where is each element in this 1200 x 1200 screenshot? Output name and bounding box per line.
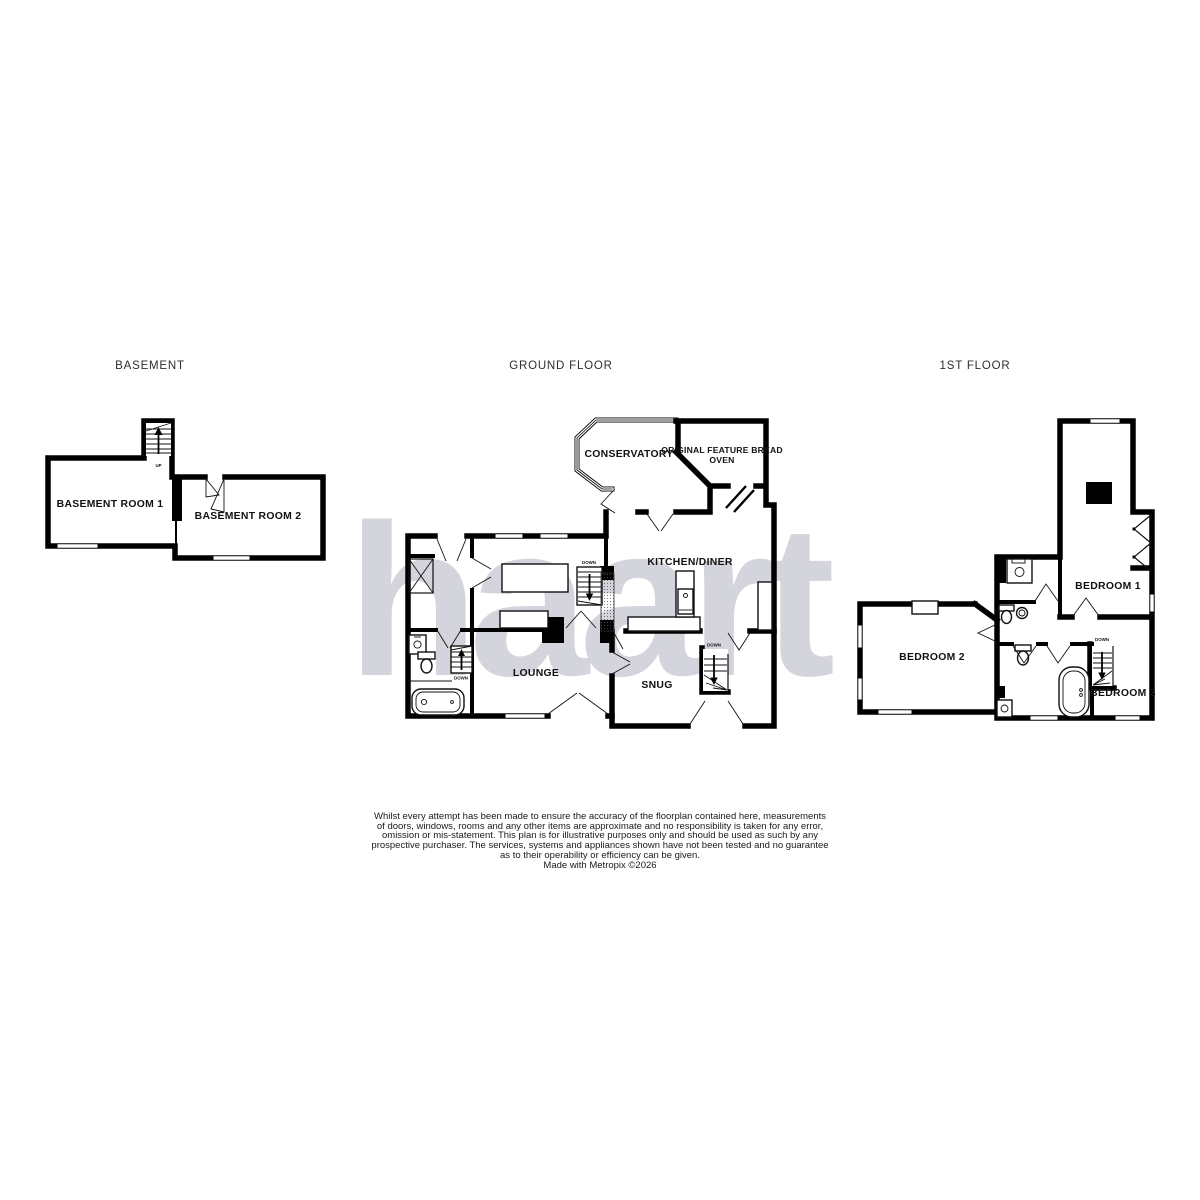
hall-closet bbox=[409, 559, 433, 593]
ground-floor-plan: DOWN bbox=[408, 420, 783, 726]
bedroom2-chimney bbox=[912, 601, 938, 614]
snug-label: SNUG bbox=[641, 680, 672, 691]
metropix-credit: Made with Metropix ©2026 bbox=[0, 861, 1200, 871]
conservatory-label: CONSERVATORY bbox=[584, 449, 673, 460]
basement-window-room2 bbox=[213, 555, 250, 562]
bedroom3-label: BEDROOM 3 bbox=[1090, 688, 1156, 699]
ground-window-top-2 bbox=[540, 533, 568, 540]
basement-walls bbox=[48, 421, 323, 558]
first-window-bed2-bottom bbox=[878, 709, 912, 716]
ground-floor-title: GROUND FLOOR bbox=[509, 360, 613, 372]
disclaimer: Whilst every attempt has been made to en… bbox=[0, 812, 1200, 870]
floorplan-page: haart BASEMENT GROUND FLOOR 1ST FLOOR bbox=[0, 0, 1200, 1200]
first-window-bed3-bottom bbox=[1115, 715, 1140, 722]
floorplan-drawing: BASEMENT GROUND FLOOR 1ST FLOOR bbox=[0, 0, 1200, 1200]
bedroom1-chimney bbox=[1086, 482, 1112, 504]
ground-window-top-1 bbox=[495, 533, 523, 540]
first-floor-plan: DOWN BEDROOM 1 BEDROOM 2 BEDROOM 3 bbox=[857, 418, 1156, 722]
ground-strip-stairs-label: DOWN bbox=[454, 676, 468, 681]
ground-bath bbox=[412, 689, 464, 715]
kitchen-diner-label: KITCHEN/DINER bbox=[647, 557, 732, 568]
ground-strip-stairs bbox=[451, 646, 472, 673]
first-window-top bbox=[1090, 418, 1120, 425]
basement-stairs-label: UP bbox=[155, 463, 161, 468]
first-window-bath-bottom bbox=[1030, 715, 1058, 722]
basement-door bbox=[206, 479, 224, 512]
basement-title: BASEMENT bbox=[115, 360, 185, 372]
first-bathroom bbox=[997, 645, 1089, 717]
first-floor-title: 1ST FLOOR bbox=[940, 360, 1011, 372]
basement-stairs bbox=[146, 423, 171, 456]
ground-central-stairs-label: DOWN bbox=[582, 560, 596, 565]
first-stairs bbox=[1092, 646, 1113, 686]
basement-window-room1 bbox=[57, 543, 98, 550]
bread-oven-label-line1: ORIGINAL FEATURE BREAD bbox=[661, 445, 783, 455]
lounge-sofa bbox=[500, 611, 548, 628]
ground-central-stairs bbox=[577, 567, 602, 605]
lounge-label: LOUNGE bbox=[513, 668, 559, 679]
basement-room1-label: BASEMENT ROOM 1 bbox=[57, 499, 164, 510]
ground-snug-walls bbox=[612, 631, 774, 716]
basement-plan: UP BASEMENT ROOM 1 BASEMENT ROOM 2 bbox=[48, 421, 323, 562]
first-window-right bbox=[1149, 594, 1156, 612]
kitchen-counter bbox=[628, 571, 772, 631]
bedroom2-label: BEDROOM 2 bbox=[899, 652, 965, 663]
ground-window-lounge-bottom bbox=[505, 713, 545, 720]
ground-toilet bbox=[418, 652, 435, 673]
bedroom1-bay-windows bbox=[1133, 515, 1152, 571]
first-stairs-label: DOWN bbox=[1095, 637, 1109, 642]
ground-bathroom-sink bbox=[409, 635, 426, 654]
bedroom1-label: BEDROOM 1 bbox=[1075, 581, 1141, 592]
bread-oven-label-line2: OVEN bbox=[709, 455, 734, 465]
landing-toilet bbox=[999, 605, 1028, 624]
snug-stairs-label: DOWN bbox=[707, 643, 721, 648]
first-window-left-2 bbox=[857, 678, 864, 700]
shower-room bbox=[997, 559, 1032, 583]
basement-room2-label: BASEMENT ROOM 2 bbox=[195, 511, 302, 522]
first-window-left-1 bbox=[857, 625, 864, 648]
stair-screen bbox=[601, 573, 614, 631]
dining-table bbox=[502, 564, 568, 592]
snug-stairs bbox=[703, 649, 728, 691]
